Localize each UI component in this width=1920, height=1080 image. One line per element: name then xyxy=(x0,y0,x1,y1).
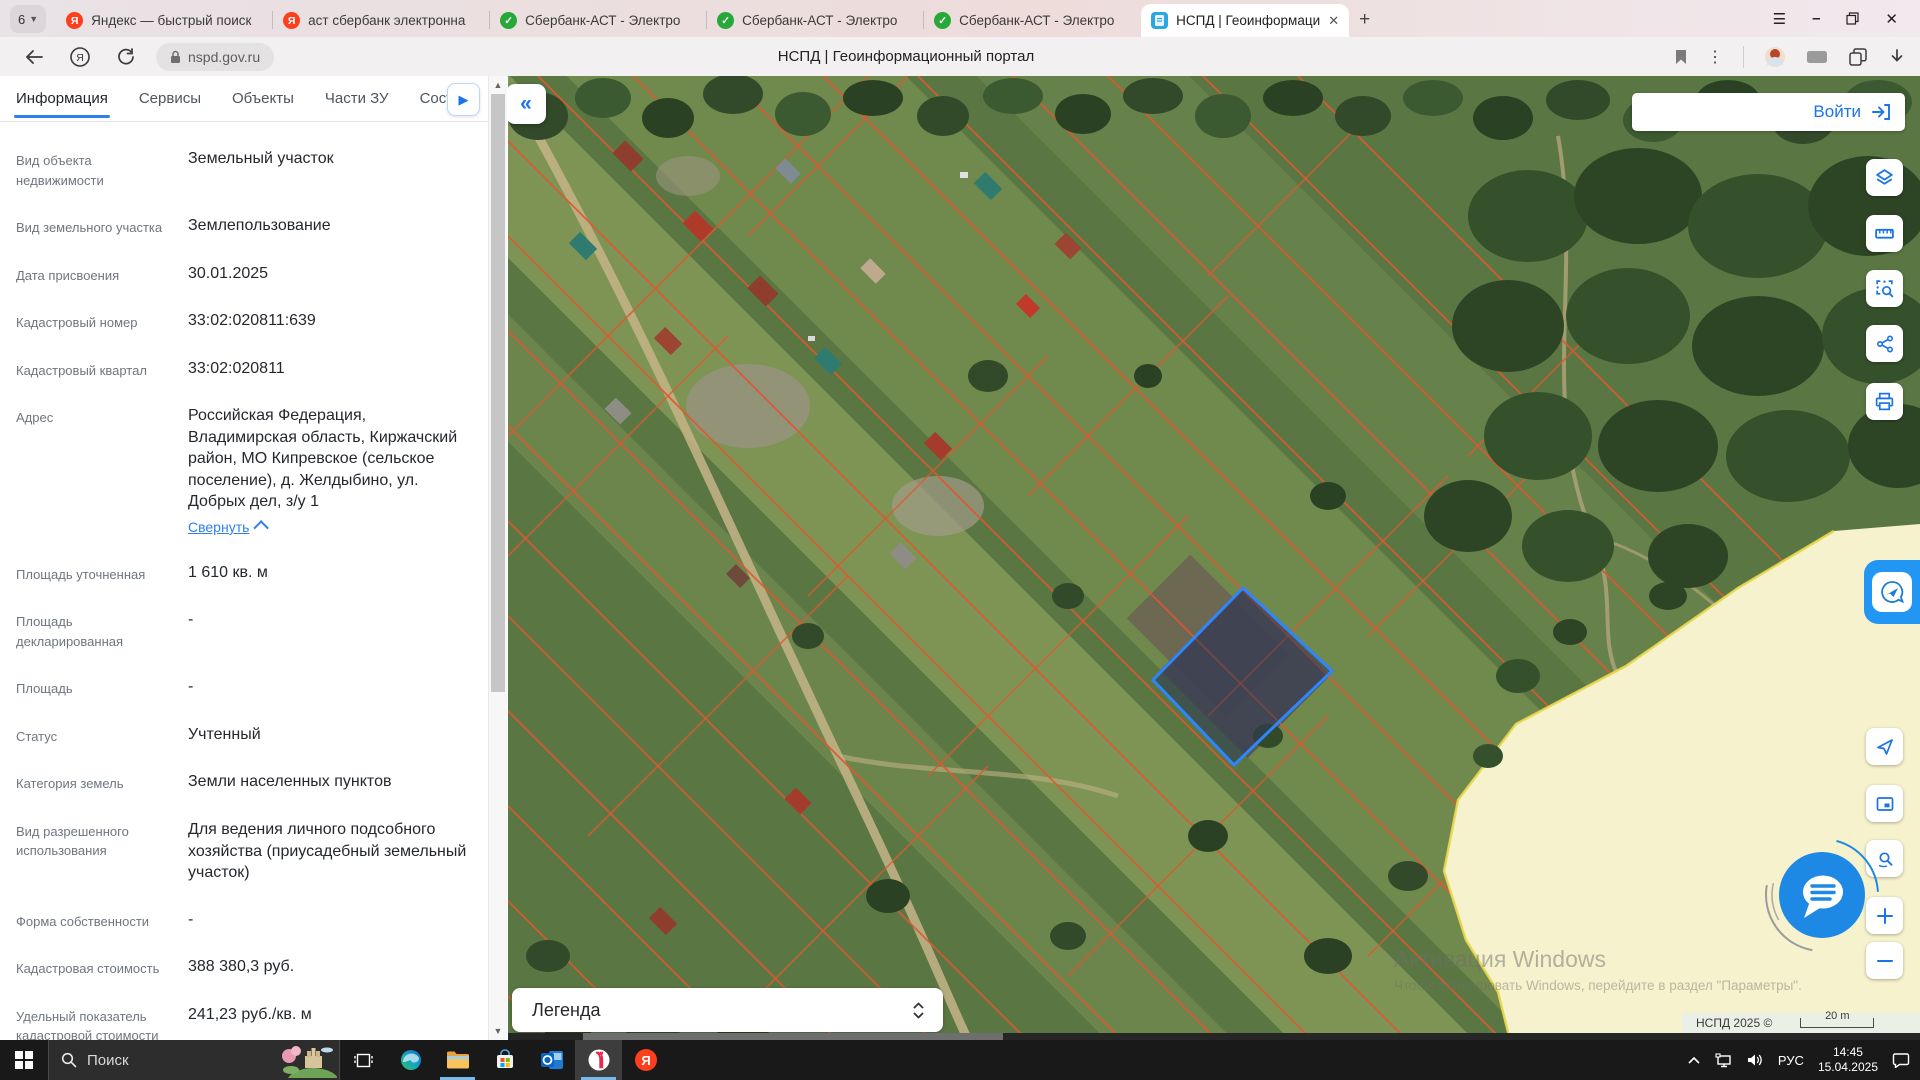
field-label: Кадастровый номер xyxy=(16,310,166,333)
start-button[interactable] xyxy=(0,1040,48,1080)
field-value: 33:02:020811:639 xyxy=(188,310,470,333)
hscroll-thumb[interactable] xyxy=(583,1033,1003,1040)
field-row: Вид земельного участка Землепользование xyxy=(16,215,470,238)
field-label: Кадастровый квартал xyxy=(16,358,166,381)
minimize-icon[interactable]: – xyxy=(1812,10,1820,27)
sberbank-ast-favicon: ✓ xyxy=(500,12,517,29)
tab-counter-value: 6 xyxy=(18,12,25,27)
tab-objects[interactable]: Объекты xyxy=(230,79,296,118)
field-value: Земельный участок xyxy=(188,148,470,190)
print-button[interactable] xyxy=(1866,383,1903,420)
panel-scrollbar[interactable]: ▲ ▼ xyxy=(488,76,507,1040)
minimap-icon xyxy=(1875,794,1895,814)
tab-groups-icon[interactable] xyxy=(1848,47,1868,67)
address-bar[interactable]: nspd.gov.ru xyxy=(156,43,274,71)
tab-label: Яндекс — быстрый поиск xyxy=(91,13,263,28)
field-label: Площадь декларированная xyxy=(16,609,166,651)
window-controls: ☰ – ✕ xyxy=(1773,0,1920,37)
tab-services[interactable]: Сервисы xyxy=(137,79,203,118)
chat-widget[interactable] xyxy=(1762,835,1882,955)
profile-avatar[interactable] xyxy=(1764,46,1786,68)
volume-icon[interactable] xyxy=(1747,1053,1764,1067)
collapse-panel-button[interactable]: « xyxy=(508,84,546,124)
taskbar-store[interactable] xyxy=(481,1040,528,1080)
windows-activation-watermark: Активация Windows Чтобы активировать Win… xyxy=(1394,946,1802,993)
field-value: Для ведения личного подсобного хозяйства… xyxy=(188,819,470,884)
toolbar-right: ⋮ xyxy=(1675,46,1906,68)
field-value: - xyxy=(188,609,470,651)
windows-taskbar: Поиск Я xyxy=(0,1040,1920,1080)
share-icon xyxy=(1875,334,1895,354)
login-bar[interactable]: Войти xyxy=(1632,93,1905,131)
field-label: Вид разрешенного использования xyxy=(16,819,166,884)
info-panel: Информация Сервисы Объекты Части ЗУ Сост… xyxy=(0,76,488,1040)
field-value: - xyxy=(188,909,470,932)
tab-label: Сбербанк-АСТ - Электро xyxy=(742,13,914,28)
back-icon[interactable] xyxy=(22,45,46,69)
taskbar-search[interactable]: Поиск xyxy=(48,1040,340,1080)
yandex-icon: Я xyxy=(634,1048,658,1072)
field-label: Вид земельного участка xyxy=(16,215,166,238)
legend-bar[interactable]: Легенда xyxy=(512,988,943,1032)
field-label: Адрес xyxy=(16,405,166,537)
object-fields: Вид объекта недвижимости Земельный участ… xyxy=(0,122,488,1040)
field-value: 33:02:020811 xyxy=(188,358,470,381)
taskbar-yandex-browser[interactable] xyxy=(575,1040,622,1080)
svg-text:Я: Я xyxy=(76,52,84,64)
ms-store-icon xyxy=(494,1049,516,1071)
bookmark-icon[interactable] xyxy=(1675,49,1687,65)
field-row: Форма собственности - xyxy=(16,909,470,932)
file-explorer-icon xyxy=(446,1050,470,1070)
field-row: Кадастровый номер 33:02:020811:639 xyxy=(16,310,470,333)
field-value: Земли населенных пунктов xyxy=(188,771,470,794)
legend-label: Легенда xyxy=(532,1000,600,1021)
field-row: Вид объекта недвижимости Земельный участ… xyxy=(16,148,470,190)
tab-label: НСПД | Геоинформаци xyxy=(1176,13,1320,28)
field-value: Российская Федерация, Владимирская облас… xyxy=(188,405,470,513)
field-value: 30.01.2025 xyxy=(188,263,470,286)
minimap-button[interactable] xyxy=(1866,785,1903,822)
tabs-scroll-right-button[interactable]: ▶ xyxy=(447,83,480,116)
browser-tab-3[interactable]: ✓ Сбербанк-АСТ - Электро xyxy=(490,4,707,37)
field-row: Кадастровая стоимость 388 380,3 руб. xyxy=(16,956,470,979)
taskbar-yandex[interactable]: Я xyxy=(622,1040,669,1080)
locate-button[interactable] xyxy=(1866,728,1903,765)
field-row: Статус Учтенный xyxy=(16,724,470,747)
field-label: Вид объекта недвижимости xyxy=(16,148,166,190)
field-value: Землепользование xyxy=(188,215,470,238)
satellite-map xyxy=(508,76,1920,1040)
task-view-icon xyxy=(354,1052,373,1069)
taskbar-outlook[interactable] xyxy=(528,1040,575,1080)
sberbank-ast-favicon: ✓ xyxy=(934,12,951,29)
yandex-browser-icon xyxy=(587,1048,611,1072)
chevron-down-icon: ▼ xyxy=(29,14,38,24)
restore-icon[interactable] xyxy=(1846,12,1859,25)
nspd-favicon xyxy=(1151,12,1168,29)
taskbar-edge[interactable] xyxy=(387,1040,434,1080)
browser-tab-active[interactable]: НСПД | Геоинформаци ✕ xyxy=(1141,4,1349,37)
yandex-home-icon[interactable]: Я xyxy=(68,45,92,69)
field-label: Площадь уточненная xyxy=(16,562,166,585)
yandex-favicon: Я xyxy=(66,12,83,29)
attribution-text: НСПД 2025 © xyxy=(1696,1016,1772,1030)
ruler-icon xyxy=(1874,223,1895,244)
scrollbar-thumb[interactable] xyxy=(491,94,505,692)
tab-information[interactable]: Информация xyxy=(14,79,110,118)
share-button[interactable] xyxy=(1866,325,1903,362)
tray-time: 14:45 xyxy=(1818,1045,1878,1060)
url-text: nspd.gov.ru xyxy=(188,49,260,65)
locate-icon xyxy=(1875,737,1895,757)
field-value: 388 380,3 руб. xyxy=(188,956,470,979)
tab-label: Сбербанк-АСТ - Электро xyxy=(959,13,1131,28)
refresh-icon[interactable] xyxy=(114,45,138,69)
edge-icon xyxy=(399,1048,423,1072)
measure-button[interactable] xyxy=(1866,215,1903,252)
new-tab-button[interactable]: + xyxy=(1359,9,1370,31)
tray-clock[interactable]: 14:45 15.04.2025 xyxy=(1818,1045,1878,1075)
field-row-address: Адрес Российская Федерация, Владимирская… xyxy=(16,405,470,537)
scroll-down-icon[interactable]: ▼ xyxy=(489,1026,507,1036)
layers-button[interactable] xyxy=(1866,159,1903,196)
tab-parts[interactable]: Части ЗУ xyxy=(323,79,391,118)
field-label: Категория земель xyxy=(16,771,166,794)
scroll-up-icon[interactable]: ▲ xyxy=(489,80,507,90)
taskbar-explorer[interactable] xyxy=(434,1040,481,1080)
yandex-favicon: Я xyxy=(283,12,300,29)
close-tab-icon[interactable]: ✕ xyxy=(1328,13,1339,29)
feedback-icon xyxy=(1872,572,1912,612)
field-row: Категория земель Земли населенных пункто… xyxy=(16,771,470,794)
notification-icon[interactable] xyxy=(1892,1052,1910,1068)
browser-tab-4[interactable]: ✓ Сбербанк-АСТ - Электро xyxy=(707,4,924,37)
page-title: НСПД | Геоинформационный портал xyxy=(778,48,1034,65)
search-icon xyxy=(61,1052,77,1068)
system-tray: РУС 14:45 15.04.2025 xyxy=(1687,1040,1920,1080)
field-row: Вид разрешенного использования Для веден… xyxy=(16,819,470,884)
field-row: Дата присвоения 30.01.2025 xyxy=(16,263,470,286)
field-value: 1 610 кв. м xyxy=(188,562,470,585)
field-row: Площадь уточненная 1 610 кв. м xyxy=(16,562,470,585)
map-horizontal-scrollbar[interactable] xyxy=(508,1033,1920,1040)
map-attribution: НСПД 2025 © 20 m xyxy=(1682,1013,1920,1033)
layers-icon xyxy=(1874,167,1895,188)
browser-toolbar: Я nspd.gov.ru НСПД | Геоинформационный п… xyxy=(0,37,1920,77)
collapse-address-link[interactable]: Свернуть xyxy=(188,519,268,535)
lock-icon xyxy=(170,50,181,64)
field-label: Статус xyxy=(16,724,166,747)
browser-tab-5[interactable]: ✓ Сбербанк-АСТ - Электро xyxy=(924,4,1141,37)
extension-icon[interactable] xyxy=(1806,50,1828,64)
windows-logo-icon xyxy=(15,1051,33,1069)
toolbar-divider xyxy=(1743,46,1744,68)
search-daily-art xyxy=(279,1042,337,1078)
feedback-tab[interactable] xyxy=(1864,560,1920,624)
field-label: Форма собственности xyxy=(16,909,166,932)
language-indicator[interactable]: РУС xyxy=(1778,1053,1804,1068)
search-placeholder: Поиск xyxy=(87,1052,129,1069)
field-label: Дата присвоения xyxy=(16,263,166,286)
task-view-button[interactable] xyxy=(340,1040,387,1080)
browser-tabstrip: 6 ▼ Я Яндекс — быстрый поиск Я аст сберб… xyxy=(0,0,1920,37)
field-value: Учтенный xyxy=(188,724,470,747)
tab-counter[interactable]: 6 ▼ xyxy=(10,5,46,33)
login-icon xyxy=(1871,103,1891,121)
tray-date: 15.04.2025 xyxy=(1818,1060,1878,1075)
browser-tab-2[interactable]: Я аст сбербанк электронна xyxy=(273,4,490,37)
panel-tabs: Информация Сервисы Объекты Части ЗУ Сост… xyxy=(0,76,488,122)
browser-tab-1[interactable]: Я Яндекс — быстрый поиск xyxy=(56,4,273,37)
kebab-menu-icon[interactable]: ⋮ xyxy=(1707,47,1723,67)
tab-label: аст сбербанк электронна xyxy=(308,13,480,28)
print-icon xyxy=(1874,391,1895,412)
browser-menu-icon[interactable]: ☰ xyxy=(1773,10,1786,28)
sberbank-ast-favicon: ✓ xyxy=(717,12,734,29)
screen: 6 ▼ Я Яндекс — быстрый поиск Я аст сберб… xyxy=(0,0,1920,1080)
field-label: Удельный показатель кадастровой стоимост… xyxy=(16,1004,166,1040)
field-row: Площадь - xyxy=(16,676,470,699)
chevron-up-icon xyxy=(254,521,270,537)
expand-icon xyxy=(912,1002,925,1019)
map-viewport[interactable]: « Войти xyxy=(508,76,1920,1040)
network-icon[interactable] xyxy=(1715,1053,1733,1068)
area-select-button[interactable] xyxy=(1866,270,1903,307)
field-row: Удельный показатель кадастровой стоимост… xyxy=(16,1004,470,1040)
outlook-icon xyxy=(540,1049,564,1071)
field-value: - xyxy=(188,676,470,699)
tab-label: Сбербанк-АСТ - Электро xyxy=(525,13,697,28)
field-row: Площадь декларированная - xyxy=(16,609,470,651)
field-label: Кадастровая стоимость xyxy=(16,956,166,979)
svg-text:Я: Я xyxy=(641,1053,650,1068)
field-row: Кадастровый квартал 33:02:020811 xyxy=(16,358,470,381)
login-label: Войти xyxy=(1813,102,1861,122)
scale-bar: 20 m xyxy=(1800,1018,1874,1028)
field-value: 241,23 руб./кв. м xyxy=(188,1004,470,1040)
download-icon[interactable] xyxy=(1888,48,1906,66)
area-select-icon xyxy=(1874,278,1895,299)
field-label: Площадь xyxy=(16,676,166,699)
tray-expand-icon[interactable] xyxy=(1687,1055,1701,1065)
close-window-icon[interactable]: ✕ xyxy=(1885,10,1898,28)
